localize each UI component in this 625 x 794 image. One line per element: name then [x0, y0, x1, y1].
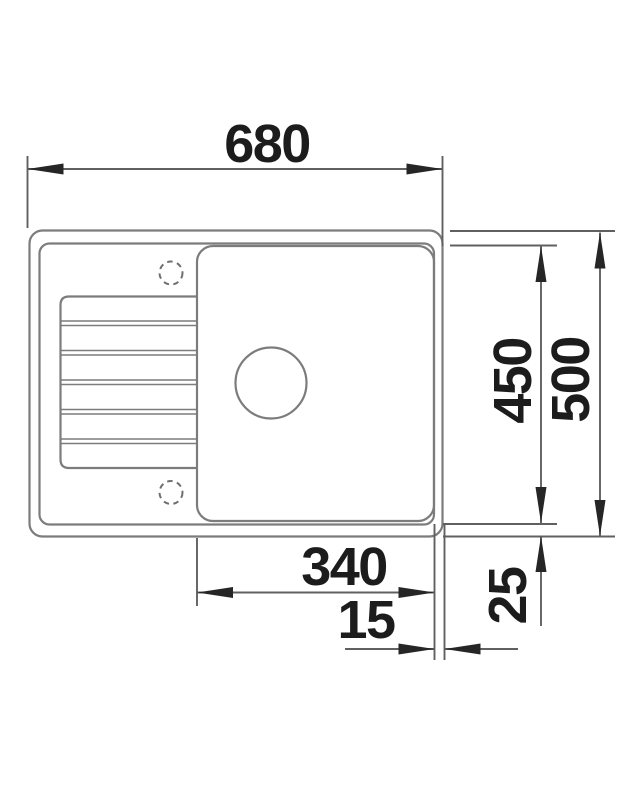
dim-15-arrow-left: [399, 644, 435, 655]
tap-hole-bottom: [160, 481, 183, 504]
dim-340-arrow-left: [197, 587, 233, 598]
drainboard-outline: [61, 297, 198, 469]
dimension-rim-width: 25: [478, 536, 547, 626]
dim-25-arrow-up: [536, 536, 547, 572]
dim-15-arrow-right: [445, 644, 481, 655]
drain-hole: [236, 348, 307, 419]
dim-label-680: 680: [224, 114, 310, 174]
sink-outline-group: [30, 231, 443, 537]
dim-680-arrow-right: [407, 164, 443, 175]
sink-bowl: [197, 246, 434, 521]
dim-label-450: 450: [483, 338, 543, 424]
dim-340-arrow-right: [399, 587, 435, 598]
technical-drawing-canvas: 680 450 500 340: [0, 0, 625, 794]
dim-680-arrow-left: [28, 164, 64, 175]
dim-450-arrow-top: [536, 246, 547, 282]
dim-label-25: 25: [478, 567, 538, 625]
dim-label-15: 15: [337, 590, 395, 650]
dim-500-arrow-top: [595, 233, 606, 269]
dim-450-arrow-bottom: [536, 487, 547, 523]
tap-hole-top: [160, 262, 183, 285]
dimension-bowl-width: 340: [197, 524, 445, 660]
dim-label-340: 340: [301, 537, 387, 597]
sink-drawing-svg: 680 450 500 340: [0, 0, 625, 794]
dim-label-500: 500: [541, 337, 601, 423]
drainboard-grooves: [61, 321, 197, 444]
dimension-overall-width: 680: [28, 114, 443, 246]
dimension-inner-depth: 450: [443, 246, 557, 525]
dim-500-arrow-bottom: [595, 500, 606, 536]
